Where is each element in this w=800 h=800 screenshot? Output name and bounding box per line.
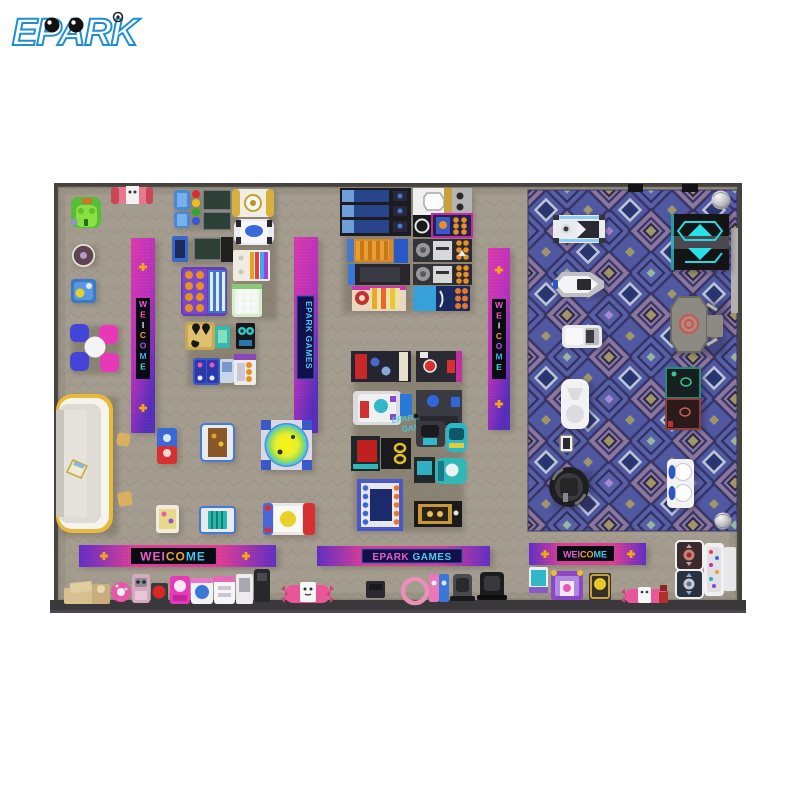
svg-text:W: W bbox=[495, 300, 504, 310]
svg-text:EPARK GAMES: EPARK GAMES bbox=[304, 301, 314, 369]
svg-text:EPARK GAMES: EPARK GAMES bbox=[372, 552, 451, 563]
svg-text:WEICOME: WEICOME bbox=[563, 550, 607, 560]
svg-text:E: E bbox=[140, 309, 146, 319]
svg-text:I: I bbox=[498, 321, 500, 331]
svg-text:E: E bbox=[496, 362, 502, 372]
svg-text:M: M bbox=[495, 352, 502, 362]
svg-text:O: O bbox=[140, 341, 147, 351]
svg-text:WEICOME: WEICOME bbox=[140, 550, 206, 564]
svg-text:W: W bbox=[139, 299, 148, 309]
svg-text:E: E bbox=[140, 361, 146, 371]
svg-text:E: E bbox=[496, 310, 502, 320]
svg-text:C: C bbox=[140, 330, 146, 340]
svg-text:O: O bbox=[496, 341, 503, 351]
svg-text:M: M bbox=[139, 351, 146, 361]
svg-text:C: C bbox=[496, 331, 502, 341]
svg-text:I: I bbox=[142, 320, 144, 330]
